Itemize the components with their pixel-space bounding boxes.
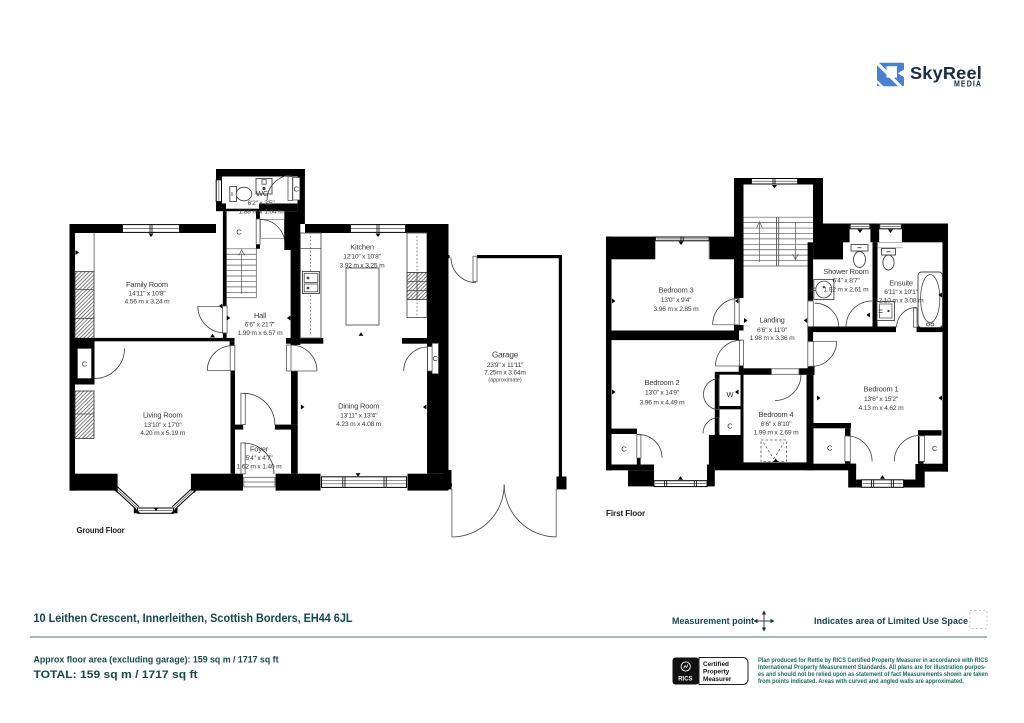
svg-text:Approx floor area (excluding g: Approx floor area (excluding garage): 15… xyxy=(34,655,279,665)
svg-text:1.92 m x 2.61 m: 1.92 m x 2.61 m xyxy=(824,287,870,294)
svg-text:12'10" x 10'8": 12'10" x 10'8" xyxy=(343,254,381,261)
svg-text:Foyer: Foyer xyxy=(250,444,269,453)
svg-text:Measurer: Measurer xyxy=(703,676,732,683)
svg-text:13'6" x 15'2": 13'6" x 15'2" xyxy=(864,396,899,403)
svg-text:TOTAL: 159 sq m / 1717 sq ft: TOTAL: 159 sq m / 1717 sq ft xyxy=(34,669,198,681)
svg-text:4.23 m x 4.08 m: 4.23 m x 4.08 m xyxy=(336,421,382,428)
svg-text:Bedroom 3: Bedroom 3 xyxy=(659,286,694,295)
svg-text:1.99 m x 6.57 m: 1.99 m x 6.57 m xyxy=(238,330,284,337)
svg-text:RICS: RICS xyxy=(678,677,692,683)
svg-text:C: C xyxy=(827,444,833,453)
svg-text:from points indicated. Areas w: from points indicated. Areas with curved… xyxy=(758,678,964,685)
svg-text:C: C xyxy=(433,354,439,363)
svg-text:International Property Measur: International Property Measurement Stand… xyxy=(758,664,986,671)
svg-text:MEDIA: MEDIA xyxy=(954,80,982,89)
svg-text:4.20 m x 5.19 m: 4.20 m x 5.19 m xyxy=(140,430,186,437)
svg-text:Certified: Certified xyxy=(703,661,729,668)
svg-text:WC: WC xyxy=(256,189,269,198)
svg-text:Family Room: Family Room xyxy=(126,280,168,289)
svg-text:2.10 m x 3.08 m: 2.10 m x 3.08 m xyxy=(879,298,925,305)
svg-text:Kitchen: Kitchen xyxy=(350,242,374,251)
svg-text:Indicates area of Limited Use: Indicates area of Limited Use Space xyxy=(814,616,968,626)
svg-text:C: C xyxy=(82,360,88,369)
svg-text:Measurement point: Measurement point xyxy=(672,616,754,626)
svg-text:6'6" x 11'0": 6'6" x 11'0" xyxy=(757,327,788,334)
svg-text:Hall: Hall xyxy=(254,311,267,320)
svg-text:3.92 m x 3.25 m: 3.92 m x 3.25 m xyxy=(340,262,386,269)
svg-text:es and should not be relied up: es and should not be relied upon as stat… xyxy=(758,671,988,678)
svg-text:1.99 m x 2.69 m: 1.99 m x 2.69 m xyxy=(754,430,800,437)
svg-text:6'6" x 8'10": 6'6" x 8'10" xyxy=(761,421,792,428)
svg-text:C: C xyxy=(727,422,733,431)
svg-text:C: C xyxy=(294,185,300,194)
svg-text:Bedroom 1: Bedroom 1 xyxy=(864,385,899,394)
svg-text:3.96 m x 2.85 m: 3.96 m x 2.85 m xyxy=(654,306,700,313)
svg-text:Living Room: Living Room xyxy=(143,411,183,420)
svg-text:Property: Property xyxy=(703,669,730,676)
svg-text:Ground Floor: Ground Floor xyxy=(77,525,126,535)
svg-text:5'4" x 4'7": 5'4" x 4'7" xyxy=(245,455,273,462)
svg-text:1.98 m x 3.36 m: 1.98 m x 3.36 m xyxy=(750,335,796,342)
svg-text:6'2" x 3'5": 6'2" x 3'5" xyxy=(247,200,275,207)
svg-text:13'10" x 17'0": 13'10" x 17'0" xyxy=(144,422,182,429)
svg-text:4.13 m x 4.62 m: 4.13 m x 4.62 m xyxy=(859,405,905,412)
svg-text:3.96 m x 4.49 m: 3.96 m x 4.49 m xyxy=(640,399,686,406)
svg-text:13'11" x 13'4": 13'11" x 13'4" xyxy=(340,413,378,420)
svg-text:Garage: Garage xyxy=(492,351,519,360)
svg-text:Bedroom 4: Bedroom 4 xyxy=(759,410,794,419)
svg-text:7.25m x 3.64m: 7.25m x 3.64m xyxy=(484,370,526,377)
svg-text:(approximate): (approximate) xyxy=(488,377,521,383)
svg-text:1.88 m x 1.04 m: 1.88 m x 1.04 m xyxy=(239,209,285,216)
svg-text:Plan produced for Rettie by RI: Plan produced for Rettie by RICS Certifi… xyxy=(758,657,988,664)
svg-text:13'0" x 14'9": 13'0" x 14'9" xyxy=(645,390,680,397)
svg-text:C: C xyxy=(932,444,938,453)
svg-text:10 Leithen Crescent, Innerleit: 10 Leithen Crescent, Innerleithen, Scott… xyxy=(34,611,353,625)
svg-text:Dining Room: Dining Room xyxy=(338,402,379,411)
svg-text:C: C xyxy=(236,228,242,237)
svg-text:C: C xyxy=(621,445,627,454)
svg-text:6'6" x 21'7": 6'6" x 21'7" xyxy=(245,321,276,328)
svg-text:23'9" x 11'11": 23'9" x 11'11" xyxy=(487,362,524,369)
svg-text:W: W xyxy=(726,390,734,399)
svg-text:Shower Room: Shower Room xyxy=(823,267,868,276)
svg-text:Bedroom 2: Bedroom 2 xyxy=(645,378,680,387)
svg-text:6'11" x 10'1": 6'11" x 10'1" xyxy=(884,289,918,296)
svg-text:Ensuite: Ensuite xyxy=(889,278,913,287)
svg-text:First Floor: First Floor xyxy=(606,508,646,518)
svg-text:1.62 m x 1.40 m: 1.62 m x 1.40 m xyxy=(237,463,283,470)
svg-text:14'11" x 10'8": 14'11" x 10'8" xyxy=(128,290,166,297)
svg-text:13'0" x 9'4": 13'0" x 9'4" xyxy=(661,297,692,304)
svg-text:Landing: Landing xyxy=(759,316,784,325)
svg-text:4.56 m x 3.24 m: 4.56 m x 3.24 m xyxy=(125,299,171,306)
svg-text:6'4" x 8'7": 6'4" x 8'7" xyxy=(832,278,860,285)
